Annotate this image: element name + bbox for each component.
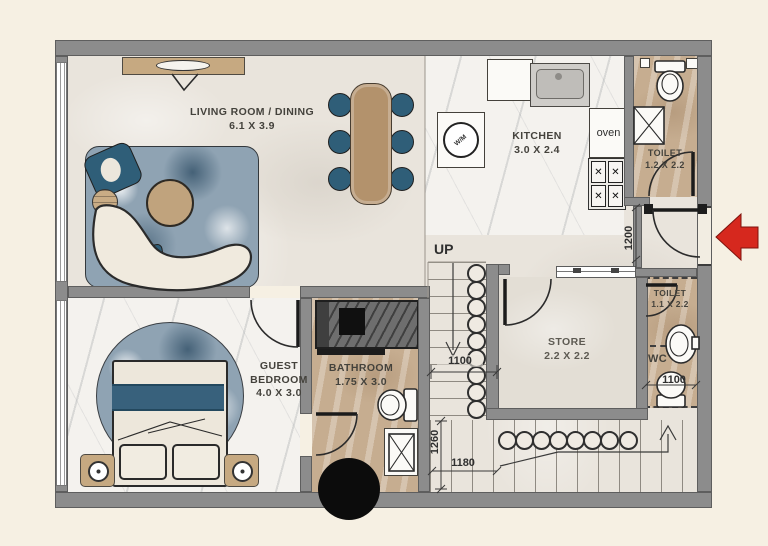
tv-screen [156,60,210,71]
store-window-tick [573,268,581,273]
dim-stair-mid: 1100 [437,355,483,367]
up-label: UP [434,241,468,257]
toilet-top-floor [634,56,697,197]
toilet-bottom-name: TOILET [641,288,699,299]
bedroom-label: GUEST BEDROOM 4.0 X 3.0 [238,360,320,401]
washing-machine-label: W/M [454,133,469,147]
dim-stair-bottom: 1180 [437,457,489,469]
dining-chair [390,93,414,117]
lamp [232,461,253,482]
store-label: STORE 2.2 X 2.2 [525,336,609,363]
exterior-wall-bottom [55,492,712,508]
nightstand-left [80,454,115,487]
bathroom-name: BATHROOM [316,362,406,376]
dining-table [350,83,392,205]
shower-wall-strip [317,302,329,347]
wall-store-bottom [486,408,648,420]
bed-blanket [112,384,224,411]
stove-burner: ✕ [608,185,623,207]
bathroom-dims: 1.75 X 3.0 [316,376,406,390]
window-left-living [56,62,67,282]
bed-pillow [172,444,220,480]
stairs-lower-run [430,420,696,492]
bedroom-name: GUEST BEDROOM [238,360,320,387]
stove-burner: ✕ [591,161,606,183]
exterior-wall-top [55,40,712,56]
washing-machine-cabinet: W/M [437,112,485,168]
stair-step-marker [467,400,486,419]
wall-living-bedroom-left [68,286,250,298]
floor-plan-canvas: W/M oven ✕ ✕ ✕ ✕ [0,0,768,546]
stove-burner: ✕ [608,161,623,183]
wall-entry-bottom [633,268,697,277]
dining-chair [328,130,352,154]
living-room-label: LIVING ROOM / DINING 6.1 X 3.9 [170,106,334,133]
kitchen-faucet [555,73,562,80]
wc-dashed-line [650,345,697,347]
fridge [487,59,533,101]
toilet-top-shelf [640,58,650,68]
entry-arrow [716,214,758,260]
living-room-name: LIVING ROOM / DINING [170,106,334,120]
entry-door-opening [698,206,711,266]
oven: oven [589,108,628,158]
black-column-marker [318,458,380,520]
coffee-table [146,179,194,227]
wall-living-bathroom [300,286,430,298]
kitchen-label: KITCHEN 3.0 X 2.4 [489,130,585,157]
kitchen-dims: 3.0 X 2.4 [489,144,585,158]
kitchen-name: KITCHEN [489,130,585,144]
shower [315,300,419,349]
dining-chair [390,130,414,154]
shower-head-unit [339,308,365,335]
stair-step-marker [600,431,619,450]
toilet-top-dims: 1.2 X 2.2 [636,160,694,172]
store-name: STORE [525,336,609,350]
wc-label: WC [648,352,682,366]
kitchen-sink-counter [530,63,590,107]
dining-chair [390,167,414,191]
bedroom-dims: 4.0 X 3.0 [238,387,320,401]
bed-pillow [119,444,167,480]
washing-machine: W/M [443,122,479,158]
wall-toilet-entry [624,197,650,206]
armchair-cushion [100,157,122,183]
stove-burner: ✕ [591,185,606,207]
store-dims: 2.2 X 2.2 [525,350,609,364]
entry-arrow-shape [716,214,758,260]
dim-entry-door: 1200 [623,213,635,263]
wall-kitchen-toilet [624,56,634,201]
side-table [92,189,118,215]
store-window-sill [556,266,636,278]
exterior-wall-right [697,56,712,492]
store-window-tick [611,268,619,273]
wall-bedroom-bathroom-lower [300,456,312,492]
window-left-bedroom [56,300,67,486]
dining-chair [328,167,352,191]
shower-curb [317,349,385,355]
living-room-dims: 6.1 X 3.9 [170,120,334,134]
toilet-top-name: TOILET [636,148,694,160]
lamp [88,461,109,482]
dim-wc-width: 1100 [652,374,696,386]
stair-step-marker [619,431,638,450]
toilet-top-label: TOILET 1.2 X 2.2 [636,148,694,171]
bathroom-vanity [384,428,418,476]
wall-store-left [486,264,499,420]
toilet-bottom-dims: 1.1 X 2.2 [641,299,699,310]
bathroom-label: BATHROOM 1.75 X 3.0 [316,362,406,389]
toilet-bottom-label: TOILET 1.1 X 2.2 [641,288,699,310]
nightstand-right [224,454,259,487]
store-window-line [557,271,635,272]
oven-label: oven [597,127,621,139]
stove: ✕ ✕ ✕ ✕ [588,158,626,210]
